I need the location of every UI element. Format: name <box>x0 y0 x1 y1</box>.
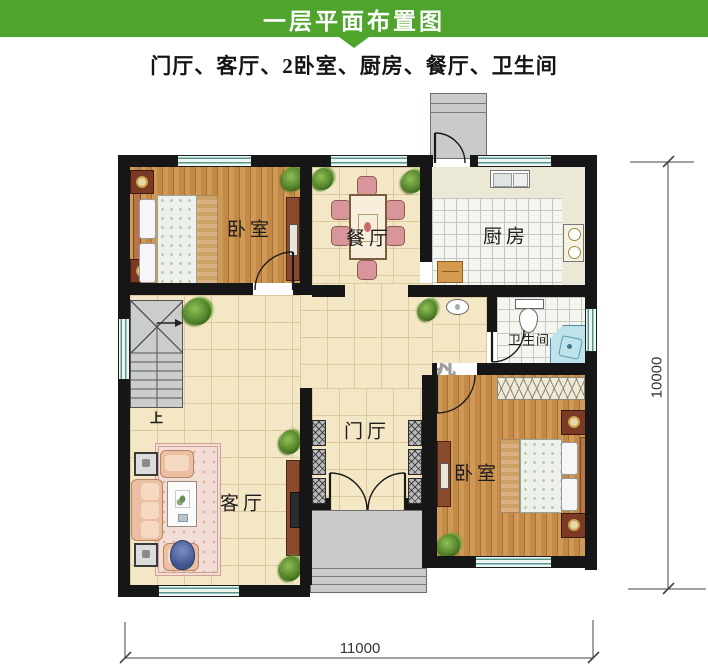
room-label-foyer: 门厅 <box>344 417 390 444</box>
dimension-height-label: 10000 <box>649 348 666 408</box>
dimension-width-label: 11000 <box>330 640 390 657</box>
room-label-living: 客厅 <box>220 489 266 516</box>
door-swing-arcs <box>255 133 524 510</box>
dimension-lines <box>120 156 706 663</box>
room-label-bedroom-bottom: 卧室 <box>454 459 500 486</box>
room-label-kitchen: 厨房 <box>483 222 529 249</box>
stairs-up-label: 上 <box>150 408 164 427</box>
room-label-bedroom-top: 卧室 <box>227 215 273 242</box>
room-label-dining: 餐厅 <box>346 224 392 251</box>
room-label-bathroom: 卫生间 <box>508 330 550 349</box>
plan-linework <box>0 0 708 666</box>
